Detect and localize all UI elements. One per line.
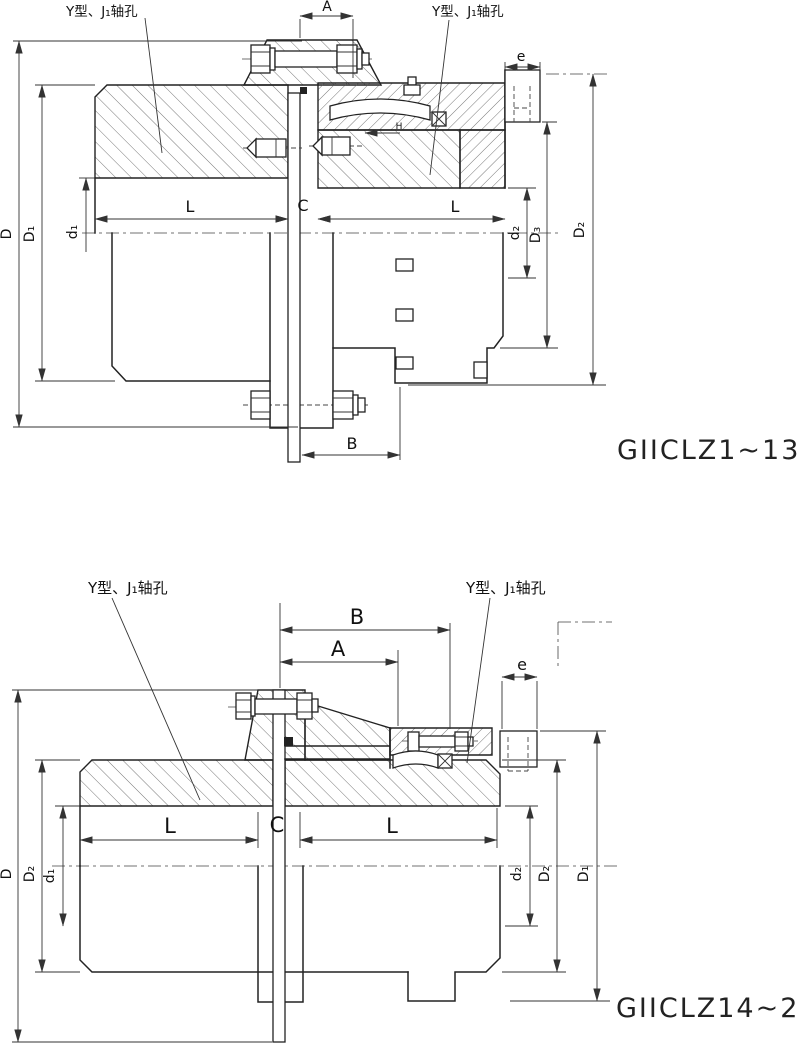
dim-A: A	[322, 0, 332, 15]
dim-d1: d₁	[65, 225, 81, 240]
brake-disc-top	[288, 87, 307, 462]
bore-type-label-left: Y型、J₁轴孔	[65, 4, 138, 20]
dim-B: B	[347, 434, 358, 453]
dim-C: C	[297, 196, 308, 215]
dim-D2-left: D₂	[22, 866, 38, 882]
exterior-outlines-bottom	[80, 806, 500, 1002]
end-plate-section	[460, 130, 505, 188]
dim-D1: D₁	[22, 226, 38, 242]
dim-D2: D₂	[572, 222, 588, 238]
sleeve-end-cap	[500, 731, 537, 767]
set-screws-top	[243, 137, 364, 157]
coupling-drawing-canvas: Y型、J₁轴孔 Y型、J₁轴孔 A e H L C L B D D₁ d₁ d₂…	[0, 0, 800, 1045]
bore-type-label-left: Y型、J₁轴孔	[87, 579, 168, 597]
dim-A: A	[331, 637, 346, 661]
dim-D1: D₁	[576, 866, 592, 882]
dim-e: e	[517, 655, 527, 674]
dim-L-right: L	[386, 814, 398, 838]
dim-d1: d₁	[42, 869, 58, 884]
dim-d2: d₂	[509, 867, 525, 882]
dim-L-left: L	[186, 197, 195, 216]
dim-H: H	[396, 122, 403, 132]
brake-disc-bottom	[273, 690, 293, 1042]
dim-e: e	[517, 49, 526, 65]
dim-D2-right: D₂	[537, 866, 553, 882]
dim-C: C	[270, 813, 285, 837]
dim-D: D	[0, 869, 15, 880]
bore-type-label-right: Y型、J₁轴孔	[431, 4, 504, 20]
model-title-top: GIICLZ1~13	[617, 435, 800, 466]
seal-ring-icon	[300, 87, 307, 94]
end-plate-bolt	[396, 259, 413, 271]
model-title-bottom: GIICLZ14~21	[616, 993, 800, 1024]
drawing-giiclz14-21: Y型、J₁轴孔 Y型、J₁轴孔 B A e L C L D D₂ d₁ d₂ D…	[0, 579, 800, 1042]
dim-D3: D₃	[528, 227, 544, 243]
lube-plug-icon	[408, 77, 416, 85]
cap-bolt	[474, 362, 487, 378]
technical-drawing-page: Y型、J₁轴孔 Y型、J₁轴孔 A e H L C L B D D₁ d₁ d₂…	[0, 0, 800, 1045]
dim-B: B	[350, 605, 364, 629]
left-hub-section	[80, 760, 273, 806]
left-hub-section	[95, 85, 288, 178]
dim-L-right: L	[451, 197, 460, 216]
dim-L-left: L	[164, 814, 176, 838]
bore-type-label-right: Y型、J₁轴孔	[465, 579, 546, 597]
end-plate-bolt	[396, 309, 413, 321]
seal-ring-icon	[284, 737, 293, 746]
dim-D: D	[0, 229, 15, 240]
drawing-giiclz1-13: Y型、J₁轴孔 Y型、J₁轴孔 A e H L C L B D D₁ d₁ d₂…	[0, 0, 800, 466]
dim-d2: d₂	[507, 226, 523, 241]
end-plate-bolt	[396, 357, 413, 369]
